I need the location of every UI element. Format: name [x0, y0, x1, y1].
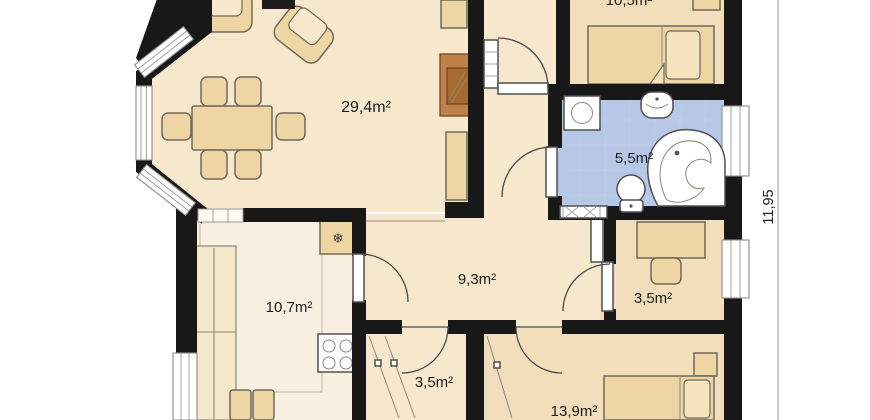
room-label-study: 3,5m² [634, 290, 672, 307]
room-label-hall: 9,3m² [458, 271, 496, 288]
hall-cabinet [591, 218, 603, 262]
bookshelf [446, 132, 467, 200]
kitchen-window [173, 353, 197, 420]
room-label-closet: 3,5m² [415, 374, 453, 391]
hall-radiator [484, 40, 498, 88]
closet-bedroom-wall [466, 320, 484, 420]
cabinet [230, 390, 251, 420]
dimension-right: 11,95 [761, 0, 778, 420]
dining-chair [201, 77, 227, 106]
room-label-bedroom-top: 10,5m² [606, 0, 653, 9]
bathroom-radiator [560, 206, 607, 218]
dining-chair [162, 113, 191, 140]
hall-bottom-wall [352, 320, 402, 334]
pass-through [198, 209, 243, 222]
nightstand [694, 353, 717, 376]
floor-plan: ❄ [0, 0, 870, 420]
armchair-seat [208, 0, 242, 16]
living-hall-wall [468, 0, 484, 204]
pillow [666, 31, 700, 79]
dining-chair [201, 150, 227, 179]
fridge-icon: ❄ [332, 231, 344, 247]
room-label-bathroom: 5,5m² [615, 150, 653, 167]
dining-chair [235, 150, 261, 179]
floor-plan-page: ❄ [0, 0, 870, 420]
room-label-living: 29,4m² [341, 99, 391, 116]
room-label-bedroom-bottom: 13,9m² [551, 403, 598, 420]
study-window [722, 240, 749, 298]
right-exterior-wall [724, 0, 742, 420]
tv-cabinet [262, 0, 295, 9]
bathroom-window [722, 106, 749, 176]
dining-chair [235, 77, 261, 106]
fridge: ❄ [320, 220, 356, 254]
hall-study-wall [604, 214, 616, 264]
washing-machine [564, 96, 600, 130]
bookshelf [441, 0, 467, 28]
kitchen-hall-wall [352, 214, 366, 256]
pillow [684, 380, 710, 418]
dimension-value: 11,95 [761, 189, 777, 224]
toilet [617, 175, 645, 212]
corridor-bedroom-wall [556, 0, 570, 86]
room-label-kitchen: 10,7m² [266, 299, 313, 316]
stove [318, 334, 356, 372]
cabinet [253, 390, 274, 420]
desk-chair [651, 258, 681, 284]
desk [693, 0, 720, 10]
bay-window-center [136, 86, 152, 160]
left-wall [176, 205, 197, 355]
sink [641, 92, 673, 118]
corner-bathtub [648, 130, 725, 206]
dining-table [192, 106, 272, 150]
desk [637, 222, 705, 258]
dining-chair [276, 113, 305, 140]
